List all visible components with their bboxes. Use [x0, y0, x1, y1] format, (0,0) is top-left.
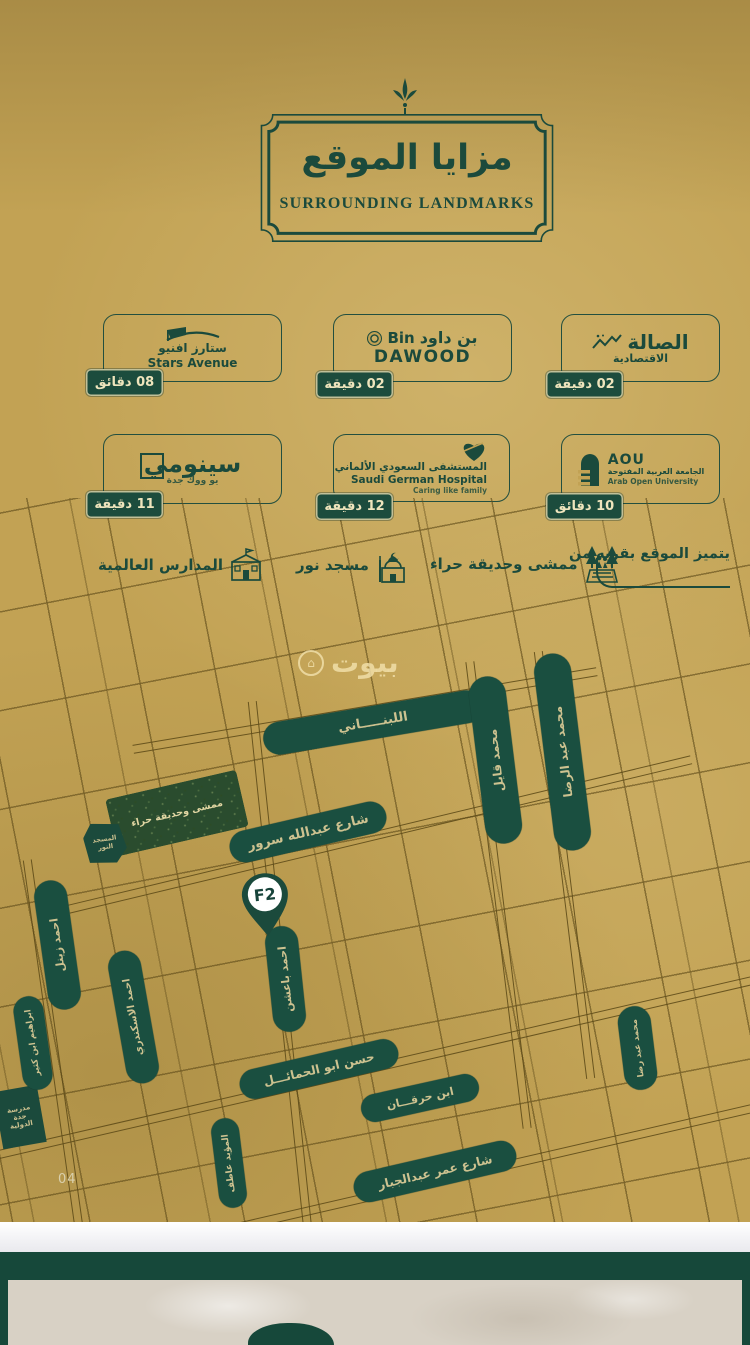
- bindawood-name-en: DAWOOD: [374, 347, 471, 367]
- watermark-text: بيوت: [331, 646, 399, 679]
- bindawood-name-en-prefix: Bin: [387, 329, 414, 347]
- minutes-badge-aou: 10 دقائق: [546, 493, 623, 520]
- section-divider: [0, 1222, 750, 1252]
- landmark-card-saudi-german-hospital: المستشفى السعودي الألماني Saudi German H…: [333, 434, 510, 502]
- cenomi-square-icon: [140, 453, 164, 479]
- bindawood-swirl-icon: [367, 331, 382, 346]
- park-trees-icon: [585, 544, 619, 584]
- page-title-arabic: مزايا الموقع: [260, 138, 554, 178]
- title-frame: [260, 112, 554, 244]
- sgh-name-ar: المستشفى السعودي الألماني: [335, 462, 487, 474]
- minutes-badge-bindawood: 02 دقيقة: [316, 371, 393, 398]
- economic-hall-name-ar-sub: الاقتصادية: [613, 353, 668, 365]
- mosque-icon: [376, 546, 408, 584]
- aou-abbr: AOU: [608, 452, 645, 468]
- aou-name-en: Arab Open University: [608, 477, 699, 486]
- proximity-item-hiraa-walk-park: ممشى وحديقة حراء: [430, 544, 619, 584]
- pin-label: F2: [253, 884, 277, 905]
- sgh-tagline: Caring like family: [413, 486, 487, 495]
- watermark-bayut: ⌂ بيوت: [298, 646, 399, 679]
- stars-avenue-logo-icon: [164, 326, 222, 342]
- bindawood-name-ar: بن داود: [420, 329, 478, 347]
- location-pin-f2: F2: [237, 869, 300, 940]
- economic-hall-name-ar: الصالة: [627, 331, 688, 353]
- landmarks-poster-page: مزايا الموقع SURROUNDING LANDMARKS ستارز…: [0, 0, 750, 1345]
- sgh-name-en: Saudi German Hospital: [351, 474, 487, 486]
- cenomi-subtext: يو ووك جدة: [167, 477, 219, 487]
- next-section-background: [8, 1280, 742, 1345]
- page-title-english: SURROUNDING LANDMARKS: [260, 195, 554, 213]
- proximity-item-international-schools: المدارس العالمية: [98, 548, 262, 582]
- proximity-item-noor-mosque: مسجد نور: [296, 546, 408, 584]
- minutes-badge-cenomi: 11 دقيقة: [86, 491, 163, 518]
- saudi-german-heart-icon: [461, 441, 487, 462]
- economic-hall-chart-icon: [592, 334, 622, 350]
- minutes-badge-sgh: 12 دقيقة: [316, 493, 393, 520]
- stars-avenue-name-en: Stars Avenue: [148, 356, 238, 370]
- school-building-icon: [230, 548, 262, 582]
- frame-ornament-icon: [389, 78, 421, 114]
- page-number: 04: [58, 1172, 77, 1187]
- stars-avenue-name-ar: ستارز افنيو: [158, 342, 227, 355]
- next-section-preview: [0, 1252, 750, 1345]
- aou-name-ar: الجامعة العربية المفتوحة: [608, 468, 705, 477]
- aou-arch-icon: [577, 451, 603, 487]
- next-section-ornament: [248, 1323, 334, 1345]
- minutes-badge-economic-hall: 02 دقيقة: [546, 371, 623, 398]
- minutes-badge-stars-avenue: 08 دقائق: [86, 369, 163, 396]
- watermark-logo-icon: ⌂: [298, 650, 324, 676]
